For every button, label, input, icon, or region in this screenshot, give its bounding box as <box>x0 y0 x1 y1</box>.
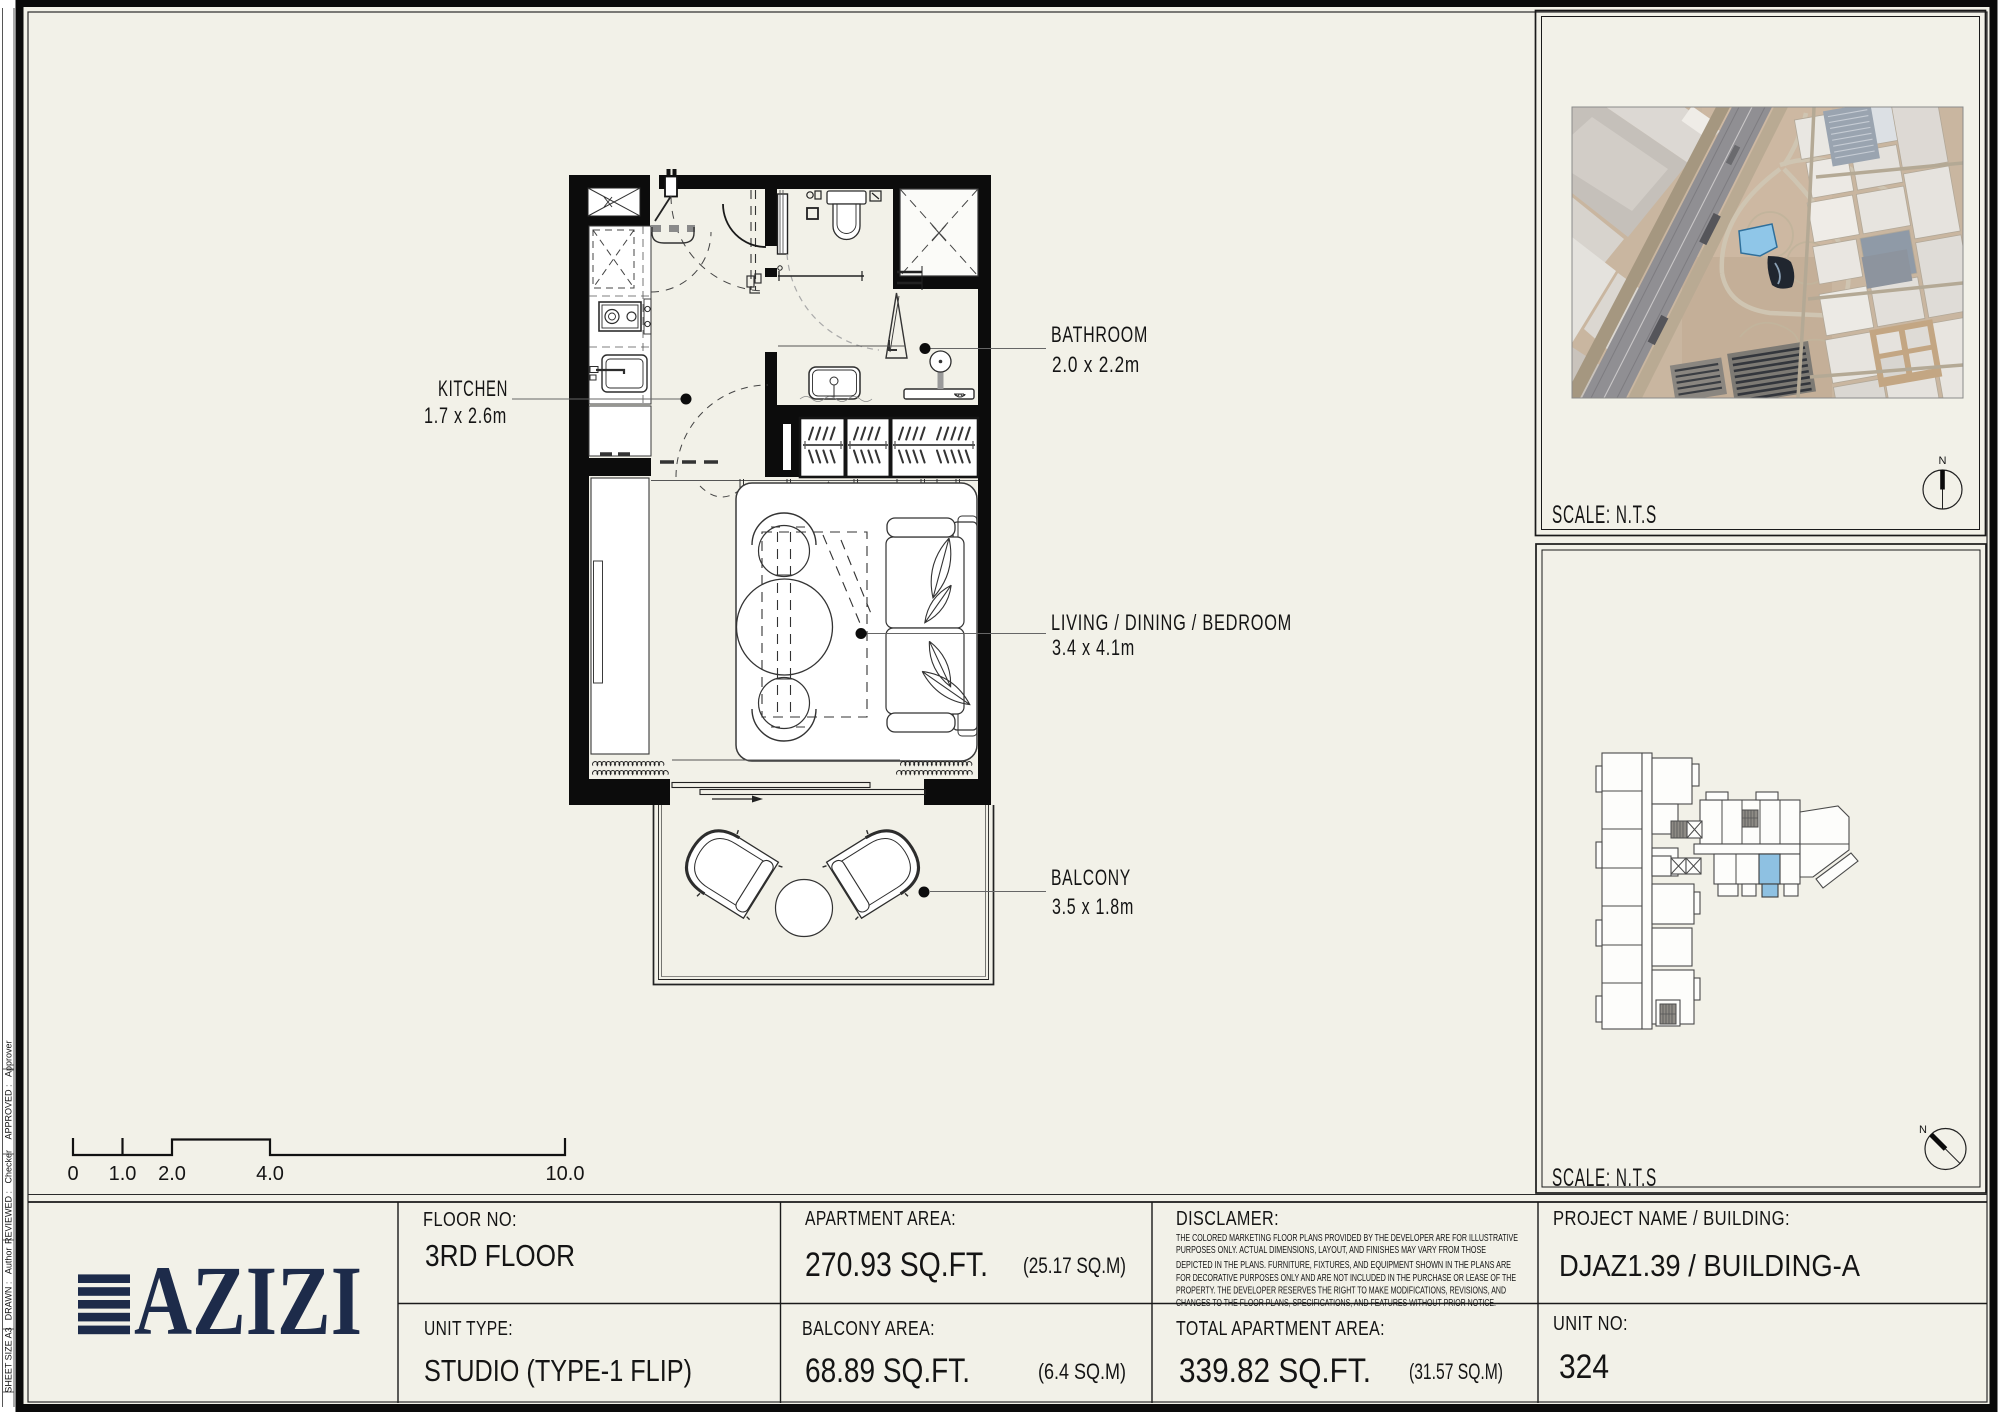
svg-text:2.0 x 2.2m: 2.0 x 2.2m <box>1052 352 1140 377</box>
svg-text:339.82 SQ.FT.: 339.82 SQ.FT. <box>1179 1352 1371 1390</box>
svg-text:LIVING / DINING / BEDROOM: LIVING / DINING / BEDROOM <box>1051 610 1292 635</box>
svg-text:DRAWN : Author: DRAWN : Author <box>3 1248 13 1321</box>
svg-text:FLOOR NO:: FLOOR NO: <box>423 1209 517 1231</box>
svg-text:CHANGES TO THE FLOOR PLANS, SP: CHANGES TO THE FLOOR PLANS, SPECIFICATIO… <box>1176 1298 1496 1309</box>
svg-text:SCALE: N.T.S: SCALE: N.T.S <box>1552 501 1657 529</box>
svg-text:3.4 x 4.1m: 3.4 x 4.1m <box>1052 635 1135 660</box>
svg-text:N: N <box>1919 1124 1927 1136</box>
svg-text:10.0: 10.0 <box>546 1163 585 1185</box>
svg-text:APARTMENT AREA:: APARTMENT AREA: <box>805 1208 956 1230</box>
svg-text:PROPERTY. THE DEVELOPER RESERV: PROPERTY. THE DEVELOPER RESERVES THE RIG… <box>1176 1285 1506 1296</box>
svg-text:1.7 x 2.6m: 1.7 x 2.6m <box>424 403 507 428</box>
svg-text:APPROVED : Approver: APPROVED : Approver <box>3 1040 13 1139</box>
svg-text:SCALE: N.T.S: SCALE: N.T.S <box>1552 1164 1657 1192</box>
svg-text:PROJECT NAME / BUILDING:: PROJECT NAME / BUILDING: <box>1553 1208 1790 1230</box>
svg-text:0: 0 <box>67 1163 78 1185</box>
svg-text:(31.57 SQ.M): (31.57 SQ.M) <box>1409 1359 1503 1384</box>
svg-text:68.89 SQ.FT.: 68.89 SQ.FT. <box>805 1352 970 1390</box>
svg-text:SHEET SIZE A3: SHEET SIZE A3 <box>3 1327 13 1392</box>
svg-text:REVIEWED : Checker: REVIEWED : Checker <box>3 1150 13 1244</box>
svg-text:DJAZ1.39 / BUILDING-A: DJAZ1.39 / BUILDING-A <box>1559 1248 1860 1283</box>
svg-text:(25.17 SQ.M): (25.17 SQ.M) <box>1023 1253 1126 1278</box>
svg-text:THE COLORED MARKETING FLOOR PL: THE COLORED MARKETING FLOOR PLANS PROVID… <box>1176 1233 1518 1244</box>
svg-text:(6.4 SQ.M): (6.4 SQ.M) <box>1038 1359 1126 1384</box>
svg-text:DISCLAMER:: DISCLAMER: <box>1176 1208 1279 1230</box>
svg-text:N: N <box>1939 455 1947 467</box>
svg-text:PURPOSES ONLY. ACTUAL DIMENSIO: PURPOSES ONLY. ACTUAL DIMENSIONS, LAYOUT… <box>1176 1245 1486 1256</box>
svg-text:AZIZI: AZIZI <box>134 1245 362 1356</box>
svg-text:270.93 SQ.FT.: 270.93 SQ.FT. <box>805 1246 988 1284</box>
svg-text:BALCONY AREA:: BALCONY AREA: <box>802 1318 935 1340</box>
svg-text:1.0: 1.0 <box>109 1163 137 1185</box>
svg-text:3.5 x 1.8m: 3.5 x 1.8m <box>1052 894 1134 919</box>
svg-text:UNIT NO:: UNIT NO: <box>1553 1313 1628 1335</box>
svg-text:4.0: 4.0 <box>256 1163 284 1185</box>
svg-text:STUDIO (TYPE-1 FLIP): STUDIO (TYPE-1 FLIP) <box>424 1353 692 1388</box>
svg-text:FOR DECORATIVE PURPOSES ONLY A: FOR DECORATIVE PURPOSES ONLY AND ARE NOT… <box>1176 1273 1516 1284</box>
svg-text:2.0: 2.0 <box>158 1163 186 1185</box>
svg-text:BATHROOM: BATHROOM <box>1051 322 1148 347</box>
svg-text:324: 324 <box>1559 1348 1609 1386</box>
svg-text:TOTAL APARTMENT AREA:: TOTAL APARTMENT AREA: <box>1176 1318 1385 1340</box>
svg-text:DEPICTED IN THE PLANS. FURNITU: DEPICTED IN THE PLANS. FURNITURE, FIXTUR… <box>1176 1260 1511 1271</box>
svg-text:UNIT TYPE:: UNIT TYPE: <box>424 1318 513 1340</box>
svg-text:3RD FLOOR: 3RD FLOOR <box>425 1238 575 1273</box>
svg-text:BALCONY: BALCONY <box>1051 865 1131 890</box>
svg-text:KITCHEN: KITCHEN <box>438 376 508 401</box>
